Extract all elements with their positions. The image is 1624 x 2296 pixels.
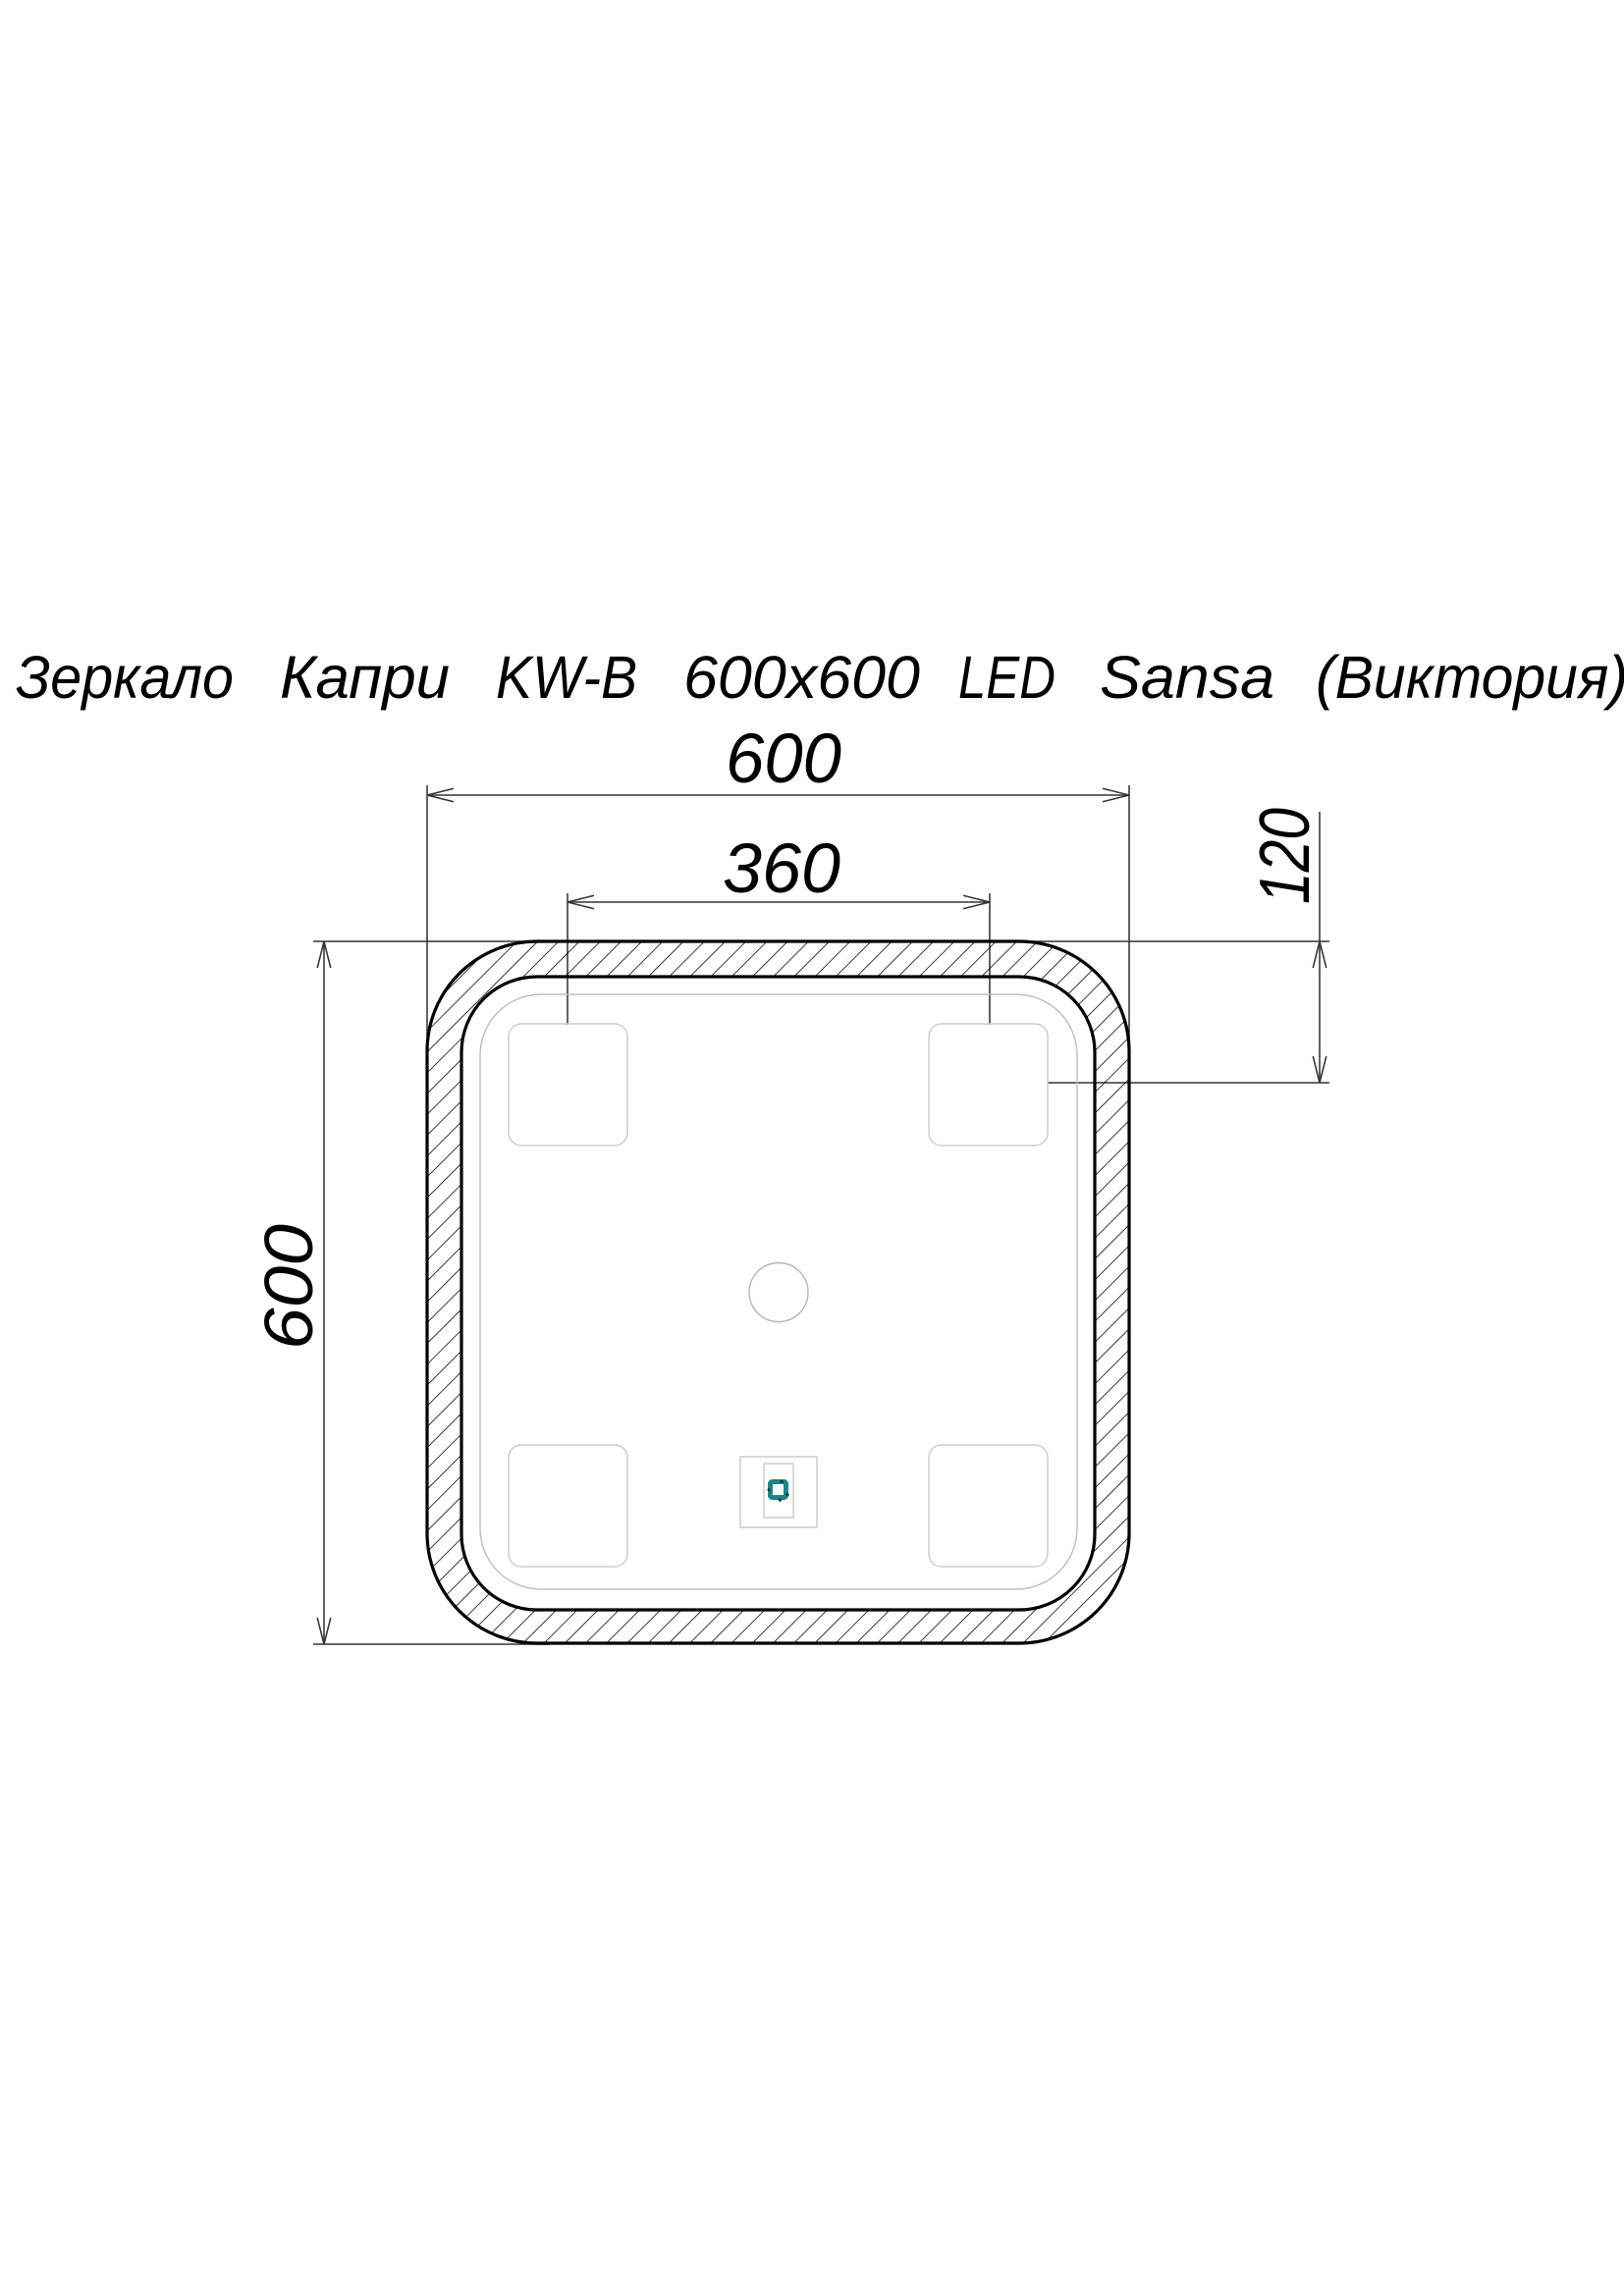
svg-text:Sansa: Sansa: [1100, 644, 1274, 711]
svg-text:600: 600: [726, 721, 841, 798]
svg-text:600x600: 600x600: [683, 644, 920, 711]
svg-text:Капри: Капри: [280, 644, 450, 711]
svg-text:LED: LED: [958, 644, 1056, 711]
svg-text:360: 360: [723, 830, 840, 908]
svg-text:KW-B: KW-B: [496, 644, 637, 711]
svg-text:120: 120: [1246, 808, 1325, 904]
svg-text:(Виктория): (Виктория): [1316, 644, 1624, 711]
svg-text:Зеркало: Зеркало: [16, 644, 234, 711]
svg-text:600: 600: [250, 1224, 327, 1350]
